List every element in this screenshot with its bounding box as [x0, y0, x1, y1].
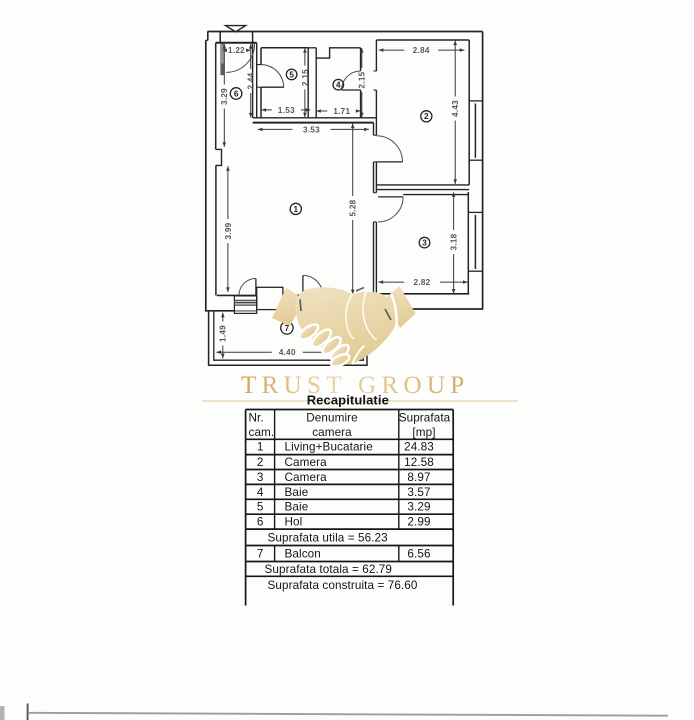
- svg-text:2.82: 2.82: [414, 278, 431, 287]
- svg-text:24.83: 24.83: [404, 441, 434, 454]
- svg-text:3.53: 3.53: [303, 125, 320, 134]
- svg-text:3: 3: [257, 471, 264, 484]
- svg-text:3.29: 3.29: [220, 88, 229, 105]
- svg-text:1.22: 1.22: [228, 46, 245, 55]
- svg-text:7: 7: [257, 547, 264, 560]
- svg-text:2.15: 2.15: [358, 71, 367, 88]
- svg-text:Suprafata totala = 62.79: Suprafata totala = 62.79: [265, 563, 393, 576]
- svg-text:[mp]: [mp]: [412, 426, 435, 439]
- svg-text:4: 4: [336, 81, 341, 90]
- svg-text:6.56: 6.56: [407, 547, 430, 560]
- svg-text:4.43: 4.43: [451, 100, 460, 117]
- svg-text:Nr.: Nr.: [249, 412, 264, 425]
- svg-text:6: 6: [234, 89, 239, 98]
- svg-text:Recapitulatie: Recapitulatie: [307, 393, 389, 408]
- svg-text:2.84: 2.84: [413, 46, 430, 55]
- svg-text:Hol: Hol: [285, 516, 303, 529]
- svg-text:5: 5: [289, 70, 294, 79]
- svg-text:Suprafata construita = 76.60: Suprafata construita = 76.60: [268, 579, 418, 592]
- svg-text:2: 2: [257, 456, 264, 469]
- svg-text:1.49: 1.49: [219, 325, 228, 342]
- svg-text:Baie: Baie: [285, 501, 309, 514]
- svg-text:1.71: 1.71: [333, 107, 350, 116]
- svg-text:4.40: 4.40: [279, 348, 296, 357]
- svg-text:camera: camera: [312, 426, 352, 439]
- svg-text:5: 5: [257, 501, 264, 514]
- svg-text:3.18: 3.18: [450, 233, 459, 250]
- svg-text:Suprafata utila = 56.23: Suprafata utila = 56.23: [268, 531, 388, 544]
- svg-text:cam.: cam.: [249, 426, 275, 439]
- svg-text:3: 3: [422, 239, 427, 248]
- svg-text:Camera: Camera: [285, 471, 328, 484]
- svg-text:5.28: 5.28: [349, 199, 358, 216]
- svg-text:Baie: Baie: [285, 486, 309, 499]
- svg-text:1.53: 1.53: [278, 106, 295, 115]
- svg-text:2.15: 2.15: [301, 69, 310, 86]
- svg-text:Living+Bucatarie: Living+Bucatarie: [285, 441, 373, 454]
- svg-text:Camera: Camera: [285, 456, 328, 469]
- svg-text:3.99: 3.99: [224, 222, 233, 239]
- svg-text:3.57: 3.57: [407, 486, 430, 499]
- svg-text:1: 1: [257, 441, 264, 454]
- svg-text:6: 6: [257, 516, 264, 529]
- svg-text:2.44: 2.44: [247, 72, 256, 89]
- svg-text:3.29: 3.29: [407, 501, 430, 514]
- svg-text:2: 2: [424, 112, 429, 121]
- svg-text:2.99: 2.99: [407, 516, 430, 529]
- svg-text:1: 1: [294, 205, 299, 214]
- svg-text:4: 4: [257, 486, 264, 499]
- svg-text:8.97: 8.97: [407, 471, 430, 484]
- svg-text:Denumire: Denumire: [306, 412, 357, 425]
- svg-text:Balcon: Balcon: [285, 547, 321, 560]
- svg-text:12.58: 12.58: [404, 456, 434, 469]
- svg-text:Suprafata: Suprafata: [399, 412, 451, 425]
